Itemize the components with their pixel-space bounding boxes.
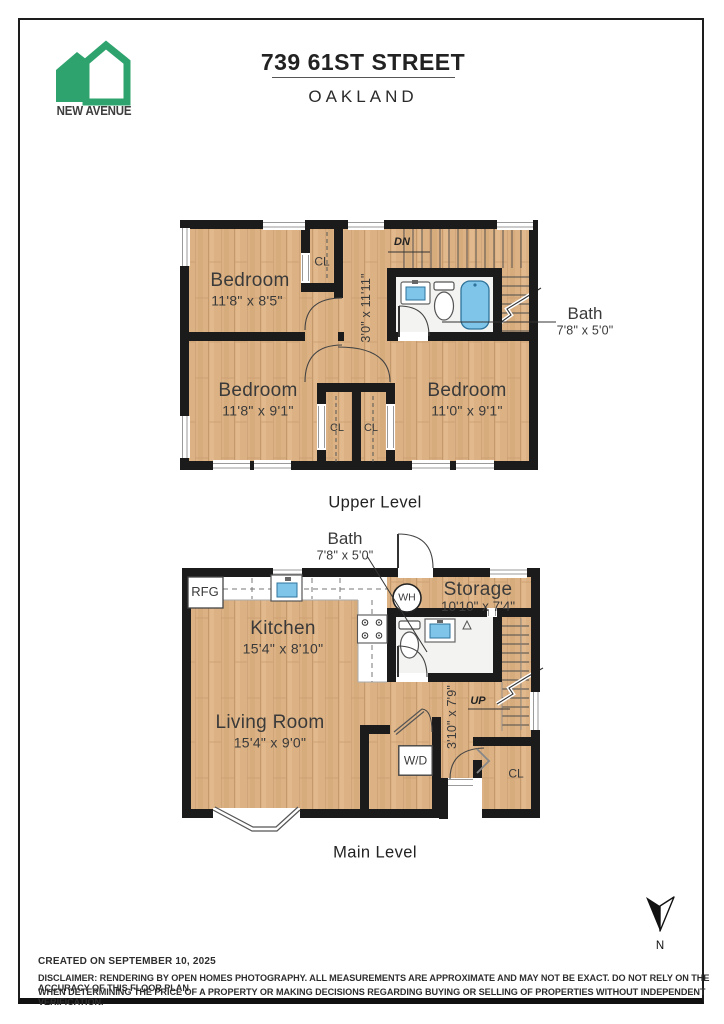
living-room-label: Living Room bbox=[216, 713, 325, 733]
upper-bedroom2-dims: 11'8" x 9'1" bbox=[222, 404, 294, 419]
upper-bedroom2-label: Bedroom bbox=[218, 381, 297, 401]
kitchen-dims: 15'4" x 8'10" bbox=[243, 642, 324, 657]
north-arrow-icon bbox=[640, 890, 684, 940]
upper-bath-label: Bath bbox=[568, 305, 603, 323]
main-bath-dims: 7'8" x 5'0" bbox=[317, 549, 374, 562]
stairs-down-label: DN bbox=[394, 237, 410, 249]
exterior-notch bbox=[448, 778, 482, 819]
footer-disclaimer-line2: WHEN DETERMINING THE PRICE OF A PROPERTY… bbox=[38, 987, 710, 1007]
upper-bedroom3-dims: 11'0" x 9'1" bbox=[431, 404, 503, 419]
upper-closet-top-label: CL bbox=[314, 256, 329, 269]
footer-created-date: CREATED ON SEPTEMBER 10, 2025 bbox=[38, 956, 216, 967]
upper-closet-left-label: CL bbox=[330, 423, 344, 435]
upper-bedroom3-label: Bedroom bbox=[427, 381, 506, 401]
main-bath-label: Bath bbox=[328, 530, 363, 548]
living-room-dims: 15'4" x 9'0" bbox=[234, 736, 307, 751]
kitchen-label: Kitchen bbox=[250, 619, 315, 639]
page-subtitle: OAKLAND bbox=[308, 87, 417, 107]
floor-plan-page: NEW AVENUE 739 61ST STREET OAKLAND bbox=[0, 0, 724, 1024]
toilet-icon bbox=[399, 621, 420, 629]
upper-bedroom1-label: Bedroom bbox=[210, 271, 289, 291]
stairs-up-label: UP bbox=[470, 696, 485, 708]
upper-closet-right-label: CL bbox=[364, 423, 378, 435]
page-title: 739 61ST STREET bbox=[261, 49, 465, 76]
title-divider bbox=[272, 77, 455, 78]
north-label: N bbox=[656, 940, 664, 952]
upper-bedroom1-dims: 11'8" x 8'5" bbox=[211, 294, 283, 309]
main-closet-label: CL bbox=[508, 768, 523, 781]
upper-level-title: Upper Level bbox=[328, 494, 421, 511]
stove-icon bbox=[358, 615, 388, 643]
brand-name: NEW AVENUE bbox=[54, 104, 135, 118]
refrigerator-label: RFG bbox=[191, 585, 218, 599]
main-hall-dims: 3'10" x 7'9" bbox=[445, 685, 459, 749]
main-level-title: Main Level bbox=[333, 844, 417, 861]
storage-dims: 10'10" x 7'4" bbox=[441, 600, 515, 614]
storage-label: Storage bbox=[444, 580, 513, 600]
toilet-icon bbox=[434, 282, 454, 290]
water-heater-label: WH bbox=[398, 592, 416, 603]
upper-bath-dims: 7'8" x 5'0" bbox=[557, 324, 614, 337]
main-level-plan bbox=[160, 528, 640, 868]
logo-house-outline bbox=[86, 45, 127, 102]
washer-dryer-label-front: W/D bbox=[404, 754, 427, 767]
upper-hall-dims: 3'0" x 11'11" bbox=[359, 273, 373, 342]
